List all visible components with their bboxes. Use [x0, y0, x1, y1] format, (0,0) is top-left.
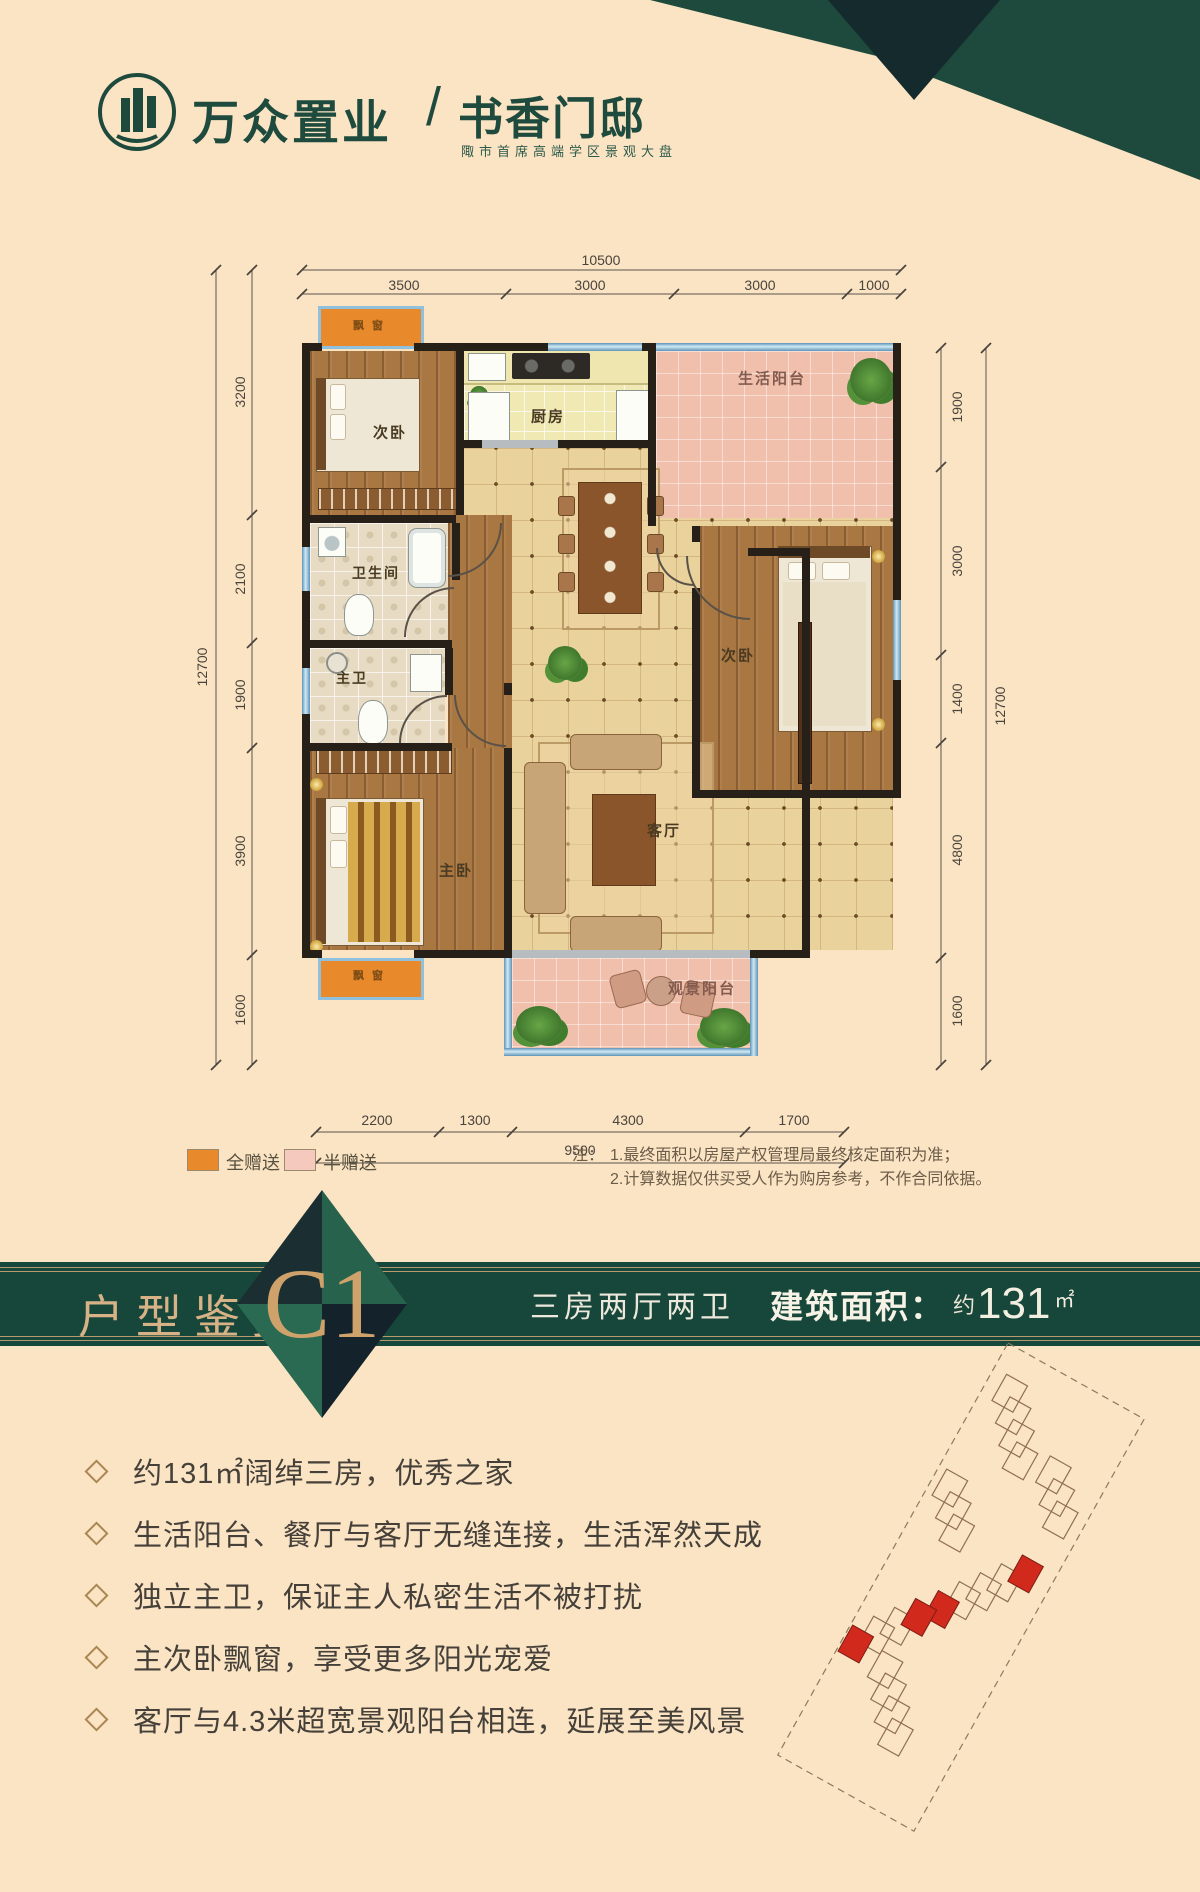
- pillow: [330, 806, 347, 834]
- dim-left-total: 12700: [194, 622, 210, 712]
- fridge: [616, 390, 652, 444]
- wall-segment: [302, 950, 322, 958]
- wall-segment: [893, 343, 901, 534]
- pillow: [330, 384, 346, 410]
- wall-segment: [893, 680, 901, 798]
- dim-top-seg: 3000: [715, 277, 805, 293]
- sofa: [570, 916, 662, 952]
- wall-segment: [456, 440, 482, 448]
- dining-table: [578, 482, 642, 614]
- washing-machine-icon: [318, 527, 346, 557]
- floor-plan: 飘窗 次卧 厨房 生活阳台 卫生间 次卧 主卫 主卧 客厅 观景阳台 飘窗: [0, 0, 1200, 1200]
- toilet: [344, 594, 374, 636]
- chair: [558, 496, 575, 516]
- bed-headboard: [316, 378, 326, 470]
- balcony-railing: [504, 1048, 758, 1056]
- room-label-view-balcony: 观景阳台: [668, 978, 736, 999]
- wall-segment: [414, 343, 460, 351]
- note-prefix: 注：: [572, 1144, 604, 1168]
- dim-right-seg: 1600: [949, 966, 965, 1056]
- legend-swatch-full-gift: [187, 1149, 219, 1171]
- window: [656, 343, 893, 351]
- diamond-bullet-icon: [84, 1645, 108, 1669]
- dim-top-seg: 1000: [829, 277, 919, 293]
- chair: [647, 572, 664, 592]
- room-label-bay-bottom: 飘窗: [353, 967, 391, 983]
- wall-segment: [748, 548, 810, 556]
- wall-segment: [692, 588, 700, 790]
- feature-text: 独立主卫，保证主人私密生活不被打扰: [133, 1574, 643, 1616]
- dim-bottom-seg: 1300: [430, 1112, 520, 1128]
- dim-top-seg: 3500: [359, 277, 449, 293]
- sink: [410, 654, 442, 692]
- wall-segment: [802, 556, 810, 958]
- plant-icon: [548, 646, 582, 680]
- pillow: [330, 414, 346, 440]
- window: [893, 600, 901, 680]
- wall-segment: [310, 640, 452, 648]
- wall-segment: [750, 950, 810, 958]
- room-label-service-balcony: 生活阳台: [738, 368, 806, 389]
- dim-left-seg: 1900: [232, 650, 248, 740]
- balcony-railing: [504, 958, 512, 1056]
- dim-left-seg: 3200: [232, 347, 248, 437]
- room-label-bedroom-right: 次卧: [721, 645, 755, 666]
- feature-text: 约131㎡阔绰三房，优秀之家: [133, 1450, 514, 1492]
- dim-bottom-seg: 1700: [749, 1112, 839, 1128]
- dim-top-seg: 3000: [545, 277, 635, 293]
- chair: [558, 534, 575, 554]
- pillow: [822, 562, 850, 580]
- room-label-bathroom: 卫生间: [352, 563, 400, 583]
- stove-icon: [512, 353, 590, 379]
- dim-left-seg: 2100: [232, 534, 248, 624]
- note-line-1: 1.最终面积以房屋产权管理局最终核定面积为准；: [610, 1144, 959, 1168]
- kitchen-cart: [468, 392, 510, 446]
- diamond-bullet-icon: [84, 1583, 108, 1607]
- sofa: [524, 762, 566, 914]
- bed-blanket: [783, 582, 866, 726]
- wall-segment: [414, 950, 512, 958]
- wall-segment: [692, 790, 901, 798]
- room-label-master-bedroom: 主卧: [439, 860, 473, 881]
- feature-text: 主次卧飘窗，享受更多阳光宠爱: [133, 1636, 553, 1678]
- lamp-icon: [872, 718, 885, 731]
- legend-label-full-gift: 全赠送: [226, 1149, 280, 1175]
- dim-right-seg: 1400: [949, 654, 965, 744]
- wall-segment: [456, 351, 464, 515]
- legend-label-half-gift: 半赠送: [323, 1149, 377, 1175]
- room-label-bay-top: 飘窗: [353, 317, 391, 333]
- bed-headboard: [316, 798, 326, 944]
- site-plan-sketch: [640, 1290, 1200, 1870]
- wall-segment: [310, 515, 456, 523]
- kitchen-sink: [468, 353, 506, 381]
- toilet: [358, 700, 388, 744]
- wall-segment: [893, 526, 901, 600]
- wall-segment: [456, 343, 548, 351]
- legend-swatch-half-gift: [284, 1149, 316, 1171]
- wall-segment: [302, 591, 310, 668]
- balcony-railing: [750, 958, 758, 1056]
- dim-bottom-seg: 2200: [332, 1112, 422, 1128]
- sofa: [570, 734, 662, 770]
- room-label-living: 客厅: [647, 820, 681, 841]
- dim-right-seg: 1900: [949, 362, 965, 452]
- wall-segment: [692, 526, 700, 542]
- dim-right-seg: 4800: [949, 805, 965, 895]
- dim-right-seg: 3000: [949, 516, 965, 606]
- poster-page: 万众置业 / 书香门邸 陬市首席高端学区景观大盘: [0, 0, 1200, 1892]
- bed-blanket: [348, 802, 420, 942]
- room-label-kitchen: 厨房: [531, 406, 565, 427]
- wall-segment: [302, 714, 310, 958]
- balcony-door-sill: [512, 950, 750, 958]
- chair: [558, 572, 575, 592]
- dim-left-seg: 3900: [232, 806, 248, 896]
- unit-code: C1: [237, 1190, 407, 1418]
- lamp-icon: [310, 778, 323, 791]
- diamond-bullet-icon: [84, 1459, 108, 1483]
- window: [302, 547, 310, 591]
- wall-segment: [648, 343, 656, 526]
- room-label-bedroom-top: 次卧: [373, 422, 407, 443]
- unit-code-diamond: C1: [237, 1190, 407, 1418]
- window: [302, 668, 310, 714]
- room-label-master-bathroom: 主卫: [336, 668, 368, 688]
- wall-segment: [504, 683, 512, 695]
- diamond-bullet-icon: [84, 1521, 108, 1545]
- plant-icon: [850, 358, 892, 402]
- bathtub: [408, 528, 446, 588]
- lamp-icon: [872, 550, 885, 563]
- pillow: [330, 840, 347, 868]
- note-line-2: 2.计算数据仅供买受人作为购房参考，不作合同依据。: [610, 1168, 991, 1192]
- window: [548, 343, 642, 351]
- dim-bottom-seg: 4300: [583, 1112, 673, 1128]
- dim-top-total: 10500: [556, 252, 646, 268]
- wall-segment: [302, 343, 310, 547]
- wall-segment: [504, 748, 512, 958]
- pass-through-sill: [482, 440, 558, 448]
- dim-right-total: 12700: [992, 661, 1008, 751]
- wall-segment: [445, 648, 453, 695]
- diamond-bullet-icon: [84, 1707, 108, 1731]
- wall-segment: [310, 743, 452, 751]
- wardrobe: [316, 750, 452, 774]
- wardrobe: [318, 488, 458, 510]
- wall-segment: [558, 440, 656, 448]
- dim-left-seg: 1600: [232, 965, 248, 1055]
- plant-icon: [516, 1006, 562, 1044]
